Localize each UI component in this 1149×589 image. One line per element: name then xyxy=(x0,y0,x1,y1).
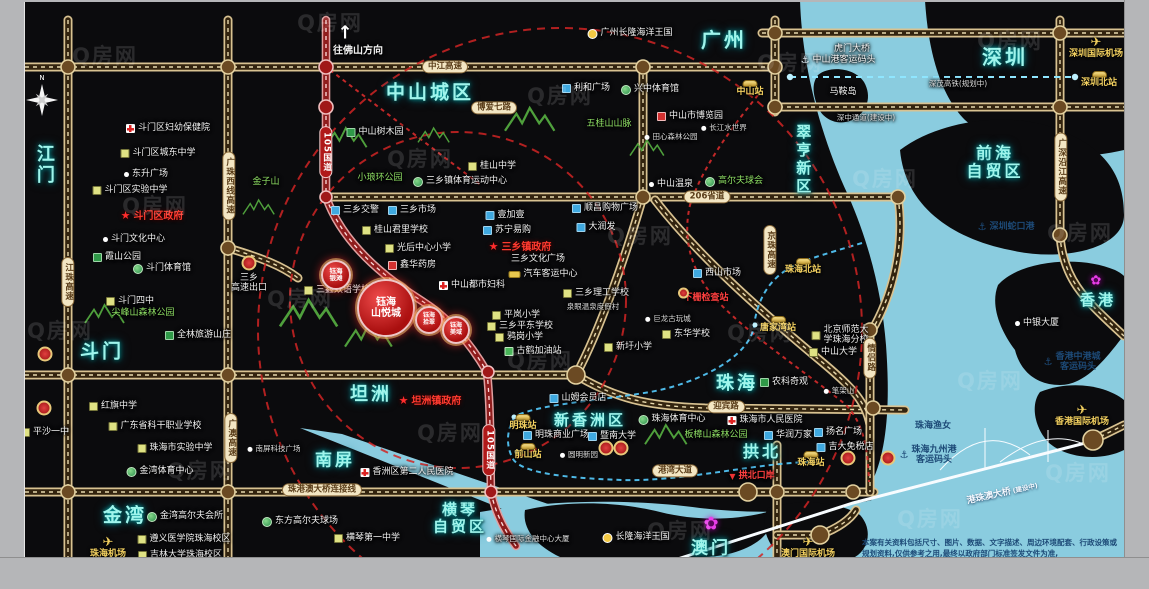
government-label: ★三乡镇政府 xyxy=(489,241,552,253)
mall-icon xyxy=(693,269,702,278)
sch-icon xyxy=(811,332,820,341)
poi-label: 壹加壹 xyxy=(485,211,524,221)
train-icon xyxy=(1091,71,1106,78)
poi-label-text: 圆明新园 xyxy=(568,451,598,459)
road-badge-text: 珠港澳大桥连接线 xyxy=(288,485,356,494)
poi-label: 斗门区城东中学 xyxy=(120,149,195,159)
road-badge-text: 港湾大道 xyxy=(658,466,692,475)
poi-label: 虎门大桥 xyxy=(834,45,870,55)
road-badge-text: 京珠高速 xyxy=(765,231,774,269)
road-badge: 206省道 xyxy=(684,190,731,203)
poi-label: 明珠商业广场 xyxy=(523,431,589,441)
poi-label: 马鞍岛 xyxy=(829,88,856,98)
gov-star-icon: ★ xyxy=(399,395,409,407)
property-name: 银滩 xyxy=(330,275,343,282)
poi-label-text: 深中通道(建设中) xyxy=(837,114,895,122)
station-label-text: 中山站 xyxy=(736,88,763,98)
road-badge: 珠港澳大桥连接线 xyxy=(282,483,362,496)
poi-label: 中山都市妇科 xyxy=(439,281,505,291)
poi-label: 泉眼温泉度假村 xyxy=(567,303,620,311)
poi-label-text: 东方高尔夫球场 xyxy=(275,517,338,527)
disclaimer-line-1: 本案有关资料包括尺寸、图片、数据、文字描述、周边环境配套、行政设策或规划资料,仅… xyxy=(862,538,1120,559)
road-badge-text: 江珠高速 xyxy=(63,263,72,301)
poi-label: 斗门区实验中学 xyxy=(92,186,167,196)
spo-icon xyxy=(262,517,272,527)
poi-label-text: 三乡交警 xyxy=(343,206,379,216)
station-label: 明珠站 xyxy=(509,414,536,432)
poi-label: 珠海市人民医院 xyxy=(727,416,802,426)
poi-label: 深茂高铁(规划中) xyxy=(929,80,987,88)
checkpoint-label: ▼拱北口岸 xyxy=(729,472,774,482)
poi-label: 田心森林公园 xyxy=(645,133,698,141)
road-badge: 博爱七路 xyxy=(471,101,517,114)
train-icon xyxy=(742,80,757,87)
poi-label: 广东省科干职业学校 xyxy=(108,422,201,432)
dot-icon xyxy=(1015,321,1020,326)
poi-label-text: 斗门四中 xyxy=(118,297,154,307)
sch-icon xyxy=(487,322,496,331)
poi-label: 金湾高尔夫会所 xyxy=(147,512,223,522)
station-label-text: 珠海站 xyxy=(797,459,824,469)
region-label-text: 金湾 xyxy=(103,506,147,527)
poi-label-text: 壹加壹 xyxy=(497,211,524,221)
station-label-text: 深圳北站 xyxy=(1081,79,1117,89)
road-badge-text: 206省道 xyxy=(690,192,725,201)
poi-label-text: 南屏科技广场 xyxy=(256,445,301,453)
poi-label-text: 深茂高铁(规划中) xyxy=(929,80,987,88)
poi-label-text: 广东省科干职业学校 xyxy=(120,422,201,432)
poi-label-text: 北京师范大学珠海分校 xyxy=(823,326,868,346)
train-icon xyxy=(520,443,535,450)
mall-icon xyxy=(388,206,397,215)
toll-icon xyxy=(599,441,614,456)
poi-label-text: 珠海体育中心 xyxy=(651,415,705,425)
toll-icon xyxy=(841,451,856,466)
poi-label-text: 利和广场 xyxy=(574,84,610,94)
sch-icon xyxy=(809,348,818,357)
plane-icon: ✈ xyxy=(103,536,114,549)
station-label: 珠海北站 xyxy=(785,258,821,276)
road-badge: 港湾大道 xyxy=(652,464,698,477)
poi-label-text: 珠海市人民医院 xyxy=(739,416,802,426)
anc-icon: ⚓ xyxy=(900,451,909,461)
poi-label: 深中通道(建设中) xyxy=(837,114,895,122)
poi-label: 古鹤加油站 xyxy=(504,347,561,357)
government-label-text: 坦洲镇政府 xyxy=(411,396,461,407)
sch-icon xyxy=(108,422,117,431)
poi-label: 小琅环公园 xyxy=(357,174,402,184)
sch-icon xyxy=(334,534,343,543)
poi-label: 中山市博览园 xyxy=(657,112,723,122)
frame-top xyxy=(0,0,1149,2)
poi-label: 兴中体育馆 xyxy=(621,85,679,95)
map-screenshot: N ↑ 港珠澳大桥(建设中) 本案有关资料包括尺寸、图片、数据、文字描述、周边环… xyxy=(0,0,1149,589)
mall-icon xyxy=(588,432,597,441)
poi-label: 新圩小学 xyxy=(604,343,652,353)
region-label: 翠亨新区 xyxy=(795,124,812,196)
poi-label-text: 长江水世界 xyxy=(709,124,747,132)
government-label: ★斗门区政府 xyxy=(121,210,184,222)
region-label-text: 珠海 xyxy=(716,374,758,394)
poi-label-text: 汽车客运中心 xyxy=(523,270,577,280)
train-icon xyxy=(515,414,530,421)
station-label-text: 珠海北站 xyxy=(785,266,821,276)
poi-label-text: 横琴国际金融中心大厦 xyxy=(495,535,570,543)
poi-label-text: 山姆会员店 xyxy=(561,394,606,404)
highway-exit-label: 三乡高速出口 xyxy=(231,274,267,294)
flower-icon: ✿ xyxy=(1091,274,1102,289)
hosp-icon xyxy=(360,468,369,477)
poi-label-text: 泉眼温泉度假村 xyxy=(567,303,620,311)
region-label-text: 坦洲 xyxy=(350,385,392,405)
poi-label: 农科奇观 xyxy=(760,378,808,388)
train-icon xyxy=(770,316,785,323)
poi-label: 横琴国际金融中心大厦 xyxy=(487,535,570,543)
poi-label: 金湾体育中心 xyxy=(126,467,193,477)
region-label-text: 南屏 xyxy=(315,452,355,471)
anc-icon: ⚓ xyxy=(1044,358,1053,368)
poi-label-text: 桂山君里学校 xyxy=(374,226,428,236)
poi-label: 平沙一中 xyxy=(21,428,69,438)
poi-label: 遵义医学院珠海校区 xyxy=(137,535,230,545)
poi-label-text: 三乡镇体育运动中心 xyxy=(426,177,507,187)
poi-label-text: 顺昌购物广场 xyxy=(584,204,638,214)
sch-icon xyxy=(106,297,115,306)
poi-label-text: 金湾高尔夫会所 xyxy=(160,512,223,522)
poi-label-text: 香港中港城客运码头 xyxy=(1055,353,1100,373)
poi-label-text: 中山港客运码头 xyxy=(812,56,875,66)
dot-icon xyxy=(248,447,253,452)
poi-label-text: 中山市博览园 xyxy=(669,112,723,122)
poi-label: 光后中心小学 xyxy=(385,244,451,254)
anc-icon: ⚓ xyxy=(978,223,987,233)
hosp-icon xyxy=(727,416,736,425)
property-name: 美域 xyxy=(450,330,462,337)
frame-right xyxy=(1124,0,1149,589)
poi-label-text: 霞山公园 xyxy=(105,253,141,263)
poi-label-text: 三乡文化广场 xyxy=(511,255,565,265)
spo-icon xyxy=(638,415,648,425)
poi-label-text: 马鞍岛 xyxy=(829,88,856,98)
poi-label: 大润发 xyxy=(576,223,615,233)
dot-icon xyxy=(103,237,108,242)
poi-label-text: 鸦岗小学 xyxy=(507,333,543,343)
poi-label: 中山温泉 xyxy=(649,180,693,190)
poi-label: 斗门体育馆 xyxy=(133,264,191,274)
sch-icon xyxy=(137,444,146,453)
region-label: 坦洲 xyxy=(350,385,392,405)
poi-label-text: 华润万家 xyxy=(776,431,812,441)
road-badge: 中江高速 xyxy=(422,60,468,73)
svg-text:N: N xyxy=(39,74,44,82)
region-label-text: 新香洲区 xyxy=(554,412,626,429)
poi-label-text: 珠海市实验中学 xyxy=(149,444,212,454)
train-icon xyxy=(795,258,810,265)
poi-label-text: 长隆海洋王国 xyxy=(615,533,669,543)
poi-label: 全林旅游山庄 xyxy=(165,331,231,341)
region-label: 江门 xyxy=(34,144,54,186)
mall-icon xyxy=(562,84,571,93)
station-label-text: 深圳国际机场 xyxy=(1069,50,1123,60)
poi-label: 西山市场 xyxy=(693,269,741,279)
region-label-text: 翠亨新区 xyxy=(795,124,812,196)
poi-label-text: 中银大厦 xyxy=(1023,319,1059,329)
poi-label-text: 斗门区城东中学 xyxy=(132,149,195,159)
road-badge: 京珠高速 xyxy=(763,225,776,275)
poi-label: 板樟山森林公园 xyxy=(684,431,747,441)
poi-label-text: 横琴第一中学 xyxy=(346,534,400,544)
red-icon xyxy=(657,112,666,121)
property-name: 山悦城 xyxy=(371,308,401,320)
poi-label: 东升广场 xyxy=(124,170,168,180)
poi-label-text: 小琅环公园 xyxy=(357,174,402,184)
spo-icon xyxy=(126,467,136,477)
poi-label-text: 斗门体育馆 xyxy=(146,264,191,274)
poi-label: 顺昌购物广场 xyxy=(572,204,638,214)
poi-label: 中山树木园 xyxy=(346,128,403,138)
property-marker: 钰海美域 xyxy=(442,316,470,344)
frame-left xyxy=(0,0,25,589)
plane-icon: ✈ xyxy=(1091,36,1102,49)
station-label: 中山站 xyxy=(736,80,763,98)
flower-icon: ✿ xyxy=(703,514,718,535)
poi-label-text: 平岚小学 xyxy=(504,311,540,321)
poi-label: 长江水世界 xyxy=(701,124,747,132)
poi-label: ⚓中山港客运码头 xyxy=(801,56,876,66)
region-label: 珠海 xyxy=(716,374,758,394)
poi-label: 中银大厦 xyxy=(1015,319,1059,329)
poi-label-text: 明珠商业广场 xyxy=(535,431,589,441)
road-badge-text: 105国道 xyxy=(321,132,330,172)
road-badge-text: 中江高速 xyxy=(428,62,462,71)
road-badge-text: 迎宾路 xyxy=(713,402,739,411)
region-label: 前海自贸区 xyxy=(966,144,1023,179)
poi-label-text: 斗门区实验中学 xyxy=(104,186,167,196)
fun-icon xyxy=(587,29,597,39)
toll-icon xyxy=(678,288,689,299)
property-name: 拾翠 xyxy=(423,320,435,327)
poi-label: 三乡文化广场 xyxy=(511,255,565,265)
poi-label: 汽车客运中心 xyxy=(508,270,577,280)
poi-label: 平岚小学 xyxy=(492,311,540,321)
region-label: 广州 xyxy=(701,29,747,51)
poi-label-text: 高尔夫球会 xyxy=(718,177,763,187)
poi-label: 桂山君里学校 xyxy=(362,226,428,236)
mall-icon xyxy=(483,226,492,235)
sch-icon xyxy=(662,330,671,339)
toll-icon xyxy=(242,256,257,271)
sch-icon xyxy=(89,402,98,411)
poi-label-text: 扬名广场 xyxy=(826,428,862,438)
direction-arrow-icon: ↑ xyxy=(337,23,352,44)
poi-label-text: 香洲区第二人民医院 xyxy=(372,468,453,478)
station-label: ✈香港国际机场 xyxy=(1055,404,1109,428)
poi-label: 东华学校 xyxy=(662,330,710,340)
poi-label-text: 大润发 xyxy=(588,223,615,233)
poi-label: 圆明新园 xyxy=(560,451,598,459)
region-label-text: 中山城区 xyxy=(386,83,474,104)
region-label: 横琴自贸区 xyxy=(433,502,487,535)
poi-label-text: 兴中体育馆 xyxy=(634,85,679,95)
poi-label: 鑫华药房 xyxy=(388,261,436,271)
region-label: 新香洲区 xyxy=(554,412,626,429)
poi-label-text: 三乡理工学校 xyxy=(575,289,629,299)
compass-icon: N xyxy=(26,74,58,116)
property-marker: 钰海拾翠 xyxy=(415,306,443,334)
region-label-text: 澳门 xyxy=(691,540,731,559)
government-label-text: 三乡镇政府 xyxy=(501,242,551,253)
fun-icon xyxy=(602,533,612,543)
poi-label-text: 西山市场 xyxy=(705,269,741,279)
hosp-icon xyxy=(439,281,448,290)
poi-label: 桂山中学 xyxy=(468,162,516,172)
sch-icon xyxy=(492,311,501,320)
dot-icon xyxy=(649,182,654,187)
road-badge: 105国道 xyxy=(319,126,332,178)
region-label-text: 斗门 xyxy=(80,342,124,363)
sch-icon xyxy=(563,289,572,298)
poi-label-text: 中山大学 xyxy=(821,348,857,358)
sch-icon xyxy=(495,333,504,342)
anc-icon: ⚓ xyxy=(801,56,810,66)
dot-icon xyxy=(560,453,565,458)
poi-label: 笔架山 xyxy=(824,387,855,395)
poi-label: 五桂山山脉 xyxy=(586,120,631,130)
road-badge-text: 广深沿江高速 xyxy=(1056,139,1065,196)
sch-icon xyxy=(385,244,394,253)
poi-label: 珠海渔女 xyxy=(915,422,951,432)
property-marker-main: 钰海山悦城 xyxy=(357,279,415,337)
poi-label: 三乡市场 xyxy=(388,206,436,216)
poi-label: 三乡镇体育运动中心 xyxy=(413,177,507,187)
dot-icon xyxy=(824,389,829,394)
poi-label-text: 中山树木园 xyxy=(358,128,403,138)
station-label: 深圳北站 xyxy=(1081,71,1117,89)
highway-exit-label-text: 三乡高速出口 xyxy=(231,274,267,294)
road-badge: 迎宾路 xyxy=(707,400,745,413)
poi-label-text: 中山都市妇科 xyxy=(451,281,505,291)
park-icon xyxy=(165,331,174,340)
poi-label: 三乡交警 xyxy=(331,206,379,216)
spo-icon xyxy=(705,177,715,187)
toll-icon xyxy=(881,451,896,466)
poi-label-text: 珠海渔女 xyxy=(915,422,951,432)
poi-label-text: 中山温泉 xyxy=(657,180,693,190)
poi-label-text: 巨龙古玩城 xyxy=(653,315,691,323)
region-label: 金湾 xyxy=(103,506,147,527)
poi-label-text: 桂山中学 xyxy=(480,162,516,172)
region-label: 中山城区 xyxy=(386,83,474,104)
poi-label: 横琴第一中学 xyxy=(334,534,400,544)
mall-icon xyxy=(816,443,825,452)
region-label-text: 深圳 xyxy=(982,46,1028,68)
poi-label: 香洲区第二人民医院 xyxy=(360,468,453,478)
checkpoint-label-text: 下栅检查站 xyxy=(683,294,728,304)
gas-icon xyxy=(504,347,513,356)
poi-label-text: 全林旅游山庄 xyxy=(177,331,231,341)
poi-label-text: 鑫华药房 xyxy=(400,261,436,271)
poi-label: 尖峰山森林公园 xyxy=(111,309,174,319)
poi-label: 斗门四中 xyxy=(106,297,154,307)
poi-label-text: 光后中心小学 xyxy=(397,244,451,254)
road-badge: 广深沿江高速 xyxy=(1054,133,1067,202)
region-label-text: 江门 xyxy=(34,144,54,186)
park-icon xyxy=(93,253,102,262)
poi-label-text: 新圩小学 xyxy=(616,343,652,353)
sch-icon xyxy=(120,149,129,158)
toll-icon xyxy=(37,401,52,416)
poi-label: 斗门文化中心 xyxy=(103,235,165,245)
road-badge: 105国道 xyxy=(482,424,495,476)
poi-label: ⚓珠海九州港客运码头 xyxy=(900,446,957,466)
toll-icon xyxy=(38,347,53,362)
poi-label-text: 广州长隆海洋王国 xyxy=(600,29,672,39)
region-label: 深圳 xyxy=(982,46,1028,68)
region-label-text: 横琴自贸区 xyxy=(433,502,487,535)
station-label: 唐家湾站 xyxy=(760,316,796,334)
poi-label: 珠海市实验中学 xyxy=(137,444,212,454)
station-label-text: 唐家湾站 xyxy=(760,324,796,334)
hosp-icon xyxy=(126,124,135,133)
poi-label-text: 深圳蛇口港 xyxy=(989,223,1034,233)
poi-label: ⚓香港中港城客运码头 xyxy=(1044,353,1101,373)
poi-label: 北京师范大学珠海分校 xyxy=(811,326,868,346)
dot-icon xyxy=(645,317,650,322)
poi-label: 暨南大学 xyxy=(588,432,636,442)
poi-label: 南屏科技广场 xyxy=(248,445,301,453)
arr-icon: ▼ xyxy=(729,473,735,481)
poi-label-text: 农科奇观 xyxy=(772,378,808,388)
mall-icon xyxy=(572,204,581,213)
mall-icon xyxy=(814,428,823,437)
poi-label-text: 笔架山 xyxy=(832,387,855,395)
sch-icon xyxy=(92,186,101,195)
poi-label-text: 珠海九州港客运码头 xyxy=(911,446,956,466)
poi-label: 斗门区妇幼保健院 xyxy=(126,124,210,134)
poi-label: 华润万家 xyxy=(764,431,812,441)
poi-label-text: 五桂山山脉 xyxy=(586,120,631,130)
road-badge-text: 情侣路 xyxy=(865,344,874,373)
poi-label: 红旗中学 xyxy=(89,402,137,412)
poi-label-text: 金子山 xyxy=(252,178,279,188)
station-label-text: 前山站 xyxy=(514,451,541,461)
station-label: ✈深圳国际机场 xyxy=(1069,36,1123,60)
government-label: ★坦洲镇政府 xyxy=(399,395,462,407)
poi-label: 鸦岗小学 xyxy=(495,333,543,343)
plane-icon: ✈ xyxy=(803,536,814,549)
region-label-text: 前海自贸区 xyxy=(966,144,1023,179)
mall-icon xyxy=(331,206,340,215)
spo-icon xyxy=(133,264,143,274)
gov-star-icon: ★ xyxy=(121,210,131,222)
mall-icon xyxy=(576,223,585,232)
region-label-text: 香港 xyxy=(1080,292,1116,309)
property-name: 钰海 xyxy=(376,297,396,309)
map-canvas: N ↑ 港珠澳大桥(建设中) 本案有关资料包括尺寸、图片、数据、文字描述、周边环… xyxy=(0,0,1149,589)
poi-label-text: 东华学校 xyxy=(674,330,710,340)
region-label: 澳门 xyxy=(691,540,731,559)
checkpoint-label-text: 拱北口岸 xyxy=(739,472,775,482)
poi-label: 三乡平东学校 xyxy=(487,322,553,332)
frame-bottom xyxy=(0,557,1149,589)
poi-label: 珠海体育中心 xyxy=(638,415,705,425)
region-label: 斗门 xyxy=(80,342,124,363)
poi-label: 东方高尔夫球场 xyxy=(262,517,338,527)
park-icon xyxy=(760,378,769,387)
bus-icon xyxy=(508,271,520,278)
poi-label: 中山大学 xyxy=(809,348,857,358)
spo-icon xyxy=(147,512,157,522)
